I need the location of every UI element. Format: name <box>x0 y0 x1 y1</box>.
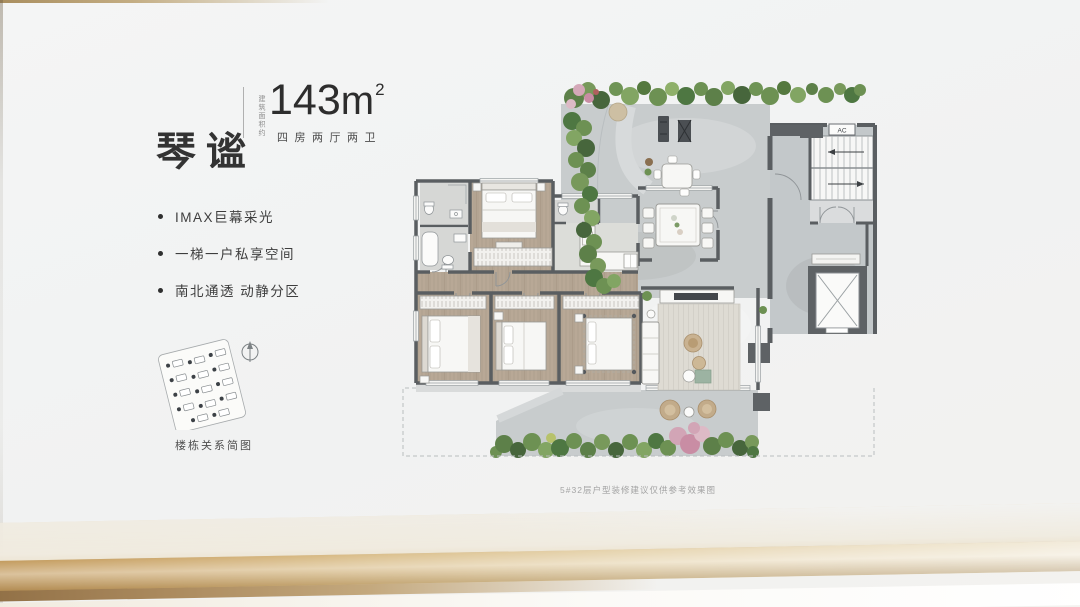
plan-disclaimer: 5#32层户型装修建议仅供参考效果图 <box>396 484 880 496</box>
master-bed <box>473 183 545 248</box>
ribbon-cream-layer <box>0 503 1080 570</box>
living-room <box>642 290 740 390</box>
bullet-dot-icon <box>158 214 163 219</box>
ribbon-shadow-layer <box>0 570 735 602</box>
presentation-slide: 琴谧 建筑面积约 143m2 四房两厅两卫 IMAX巨幕采光 一梯一户私享空间 … <box>0 0 1080 607</box>
bottom-silk-ribbon <box>0 502 1080 607</box>
room-layout-label: 四房两厅两卫 <box>277 129 382 145</box>
area-value: 143m2 <box>269 76 384 125</box>
area-number: 143 <box>269 76 341 124</box>
master-wardrobe <box>474 248 552 266</box>
feature-label: 南北通透 动静分区 <box>175 280 300 300</box>
title-divider <box>243 87 244 138</box>
feature-list: IMAX巨幕采光 一梯一户私享空间 南北通透 动静分区 <box>158 206 300 317</box>
bedroom2-bed <box>494 296 554 370</box>
bullet-dot-icon <box>158 251 163 256</box>
compass-icon <box>242 341 258 362</box>
feature-item: 一梯一户私享空间 <box>158 243 300 263</box>
staircase-icon <box>810 136 873 200</box>
top-gold-accent-line <box>0 0 330 3</box>
site-map-diagram <box>158 334 270 430</box>
floor-fills <box>416 104 875 456</box>
ac-label: AC <box>829 124 855 135</box>
floor-plan: AC <box>396 76 880 480</box>
area-exponent: 2 <box>375 80 384 99</box>
feature-label: 一梯一户私享空间 <box>175 243 295 263</box>
dining-table <box>643 204 713 248</box>
area-unit: m <box>341 79 374 123</box>
floor-plan-image: AC <box>396 76 880 480</box>
feature-label: IMAX巨幕采光 <box>175 206 274 226</box>
page-title: 琴谧 <box>156 119 256 177</box>
elevator-icon <box>808 254 867 334</box>
ribbon-gold-band <box>0 541 1080 592</box>
site-relationship-map: 楼栋关系简图 <box>158 334 270 453</box>
feature-item: 南北通透 动静分区 <box>158 280 300 300</box>
bedroom1-bed <box>420 296 486 383</box>
area-prefix-note: 建筑面积约 <box>256 95 266 138</box>
left-edge-shadow-line <box>0 0 3 607</box>
site-map-caption: 楼栋关系简图 <box>158 437 270 453</box>
sofa <box>642 322 659 384</box>
bullet-dot-icon <box>158 288 163 293</box>
feature-item: IMAX巨幕采光 <box>158 206 300 226</box>
svg-text:AC: AC <box>837 128 846 135</box>
tv-screen <box>674 293 718 300</box>
ribbon-bottom-strip <box>0 583 1080 607</box>
